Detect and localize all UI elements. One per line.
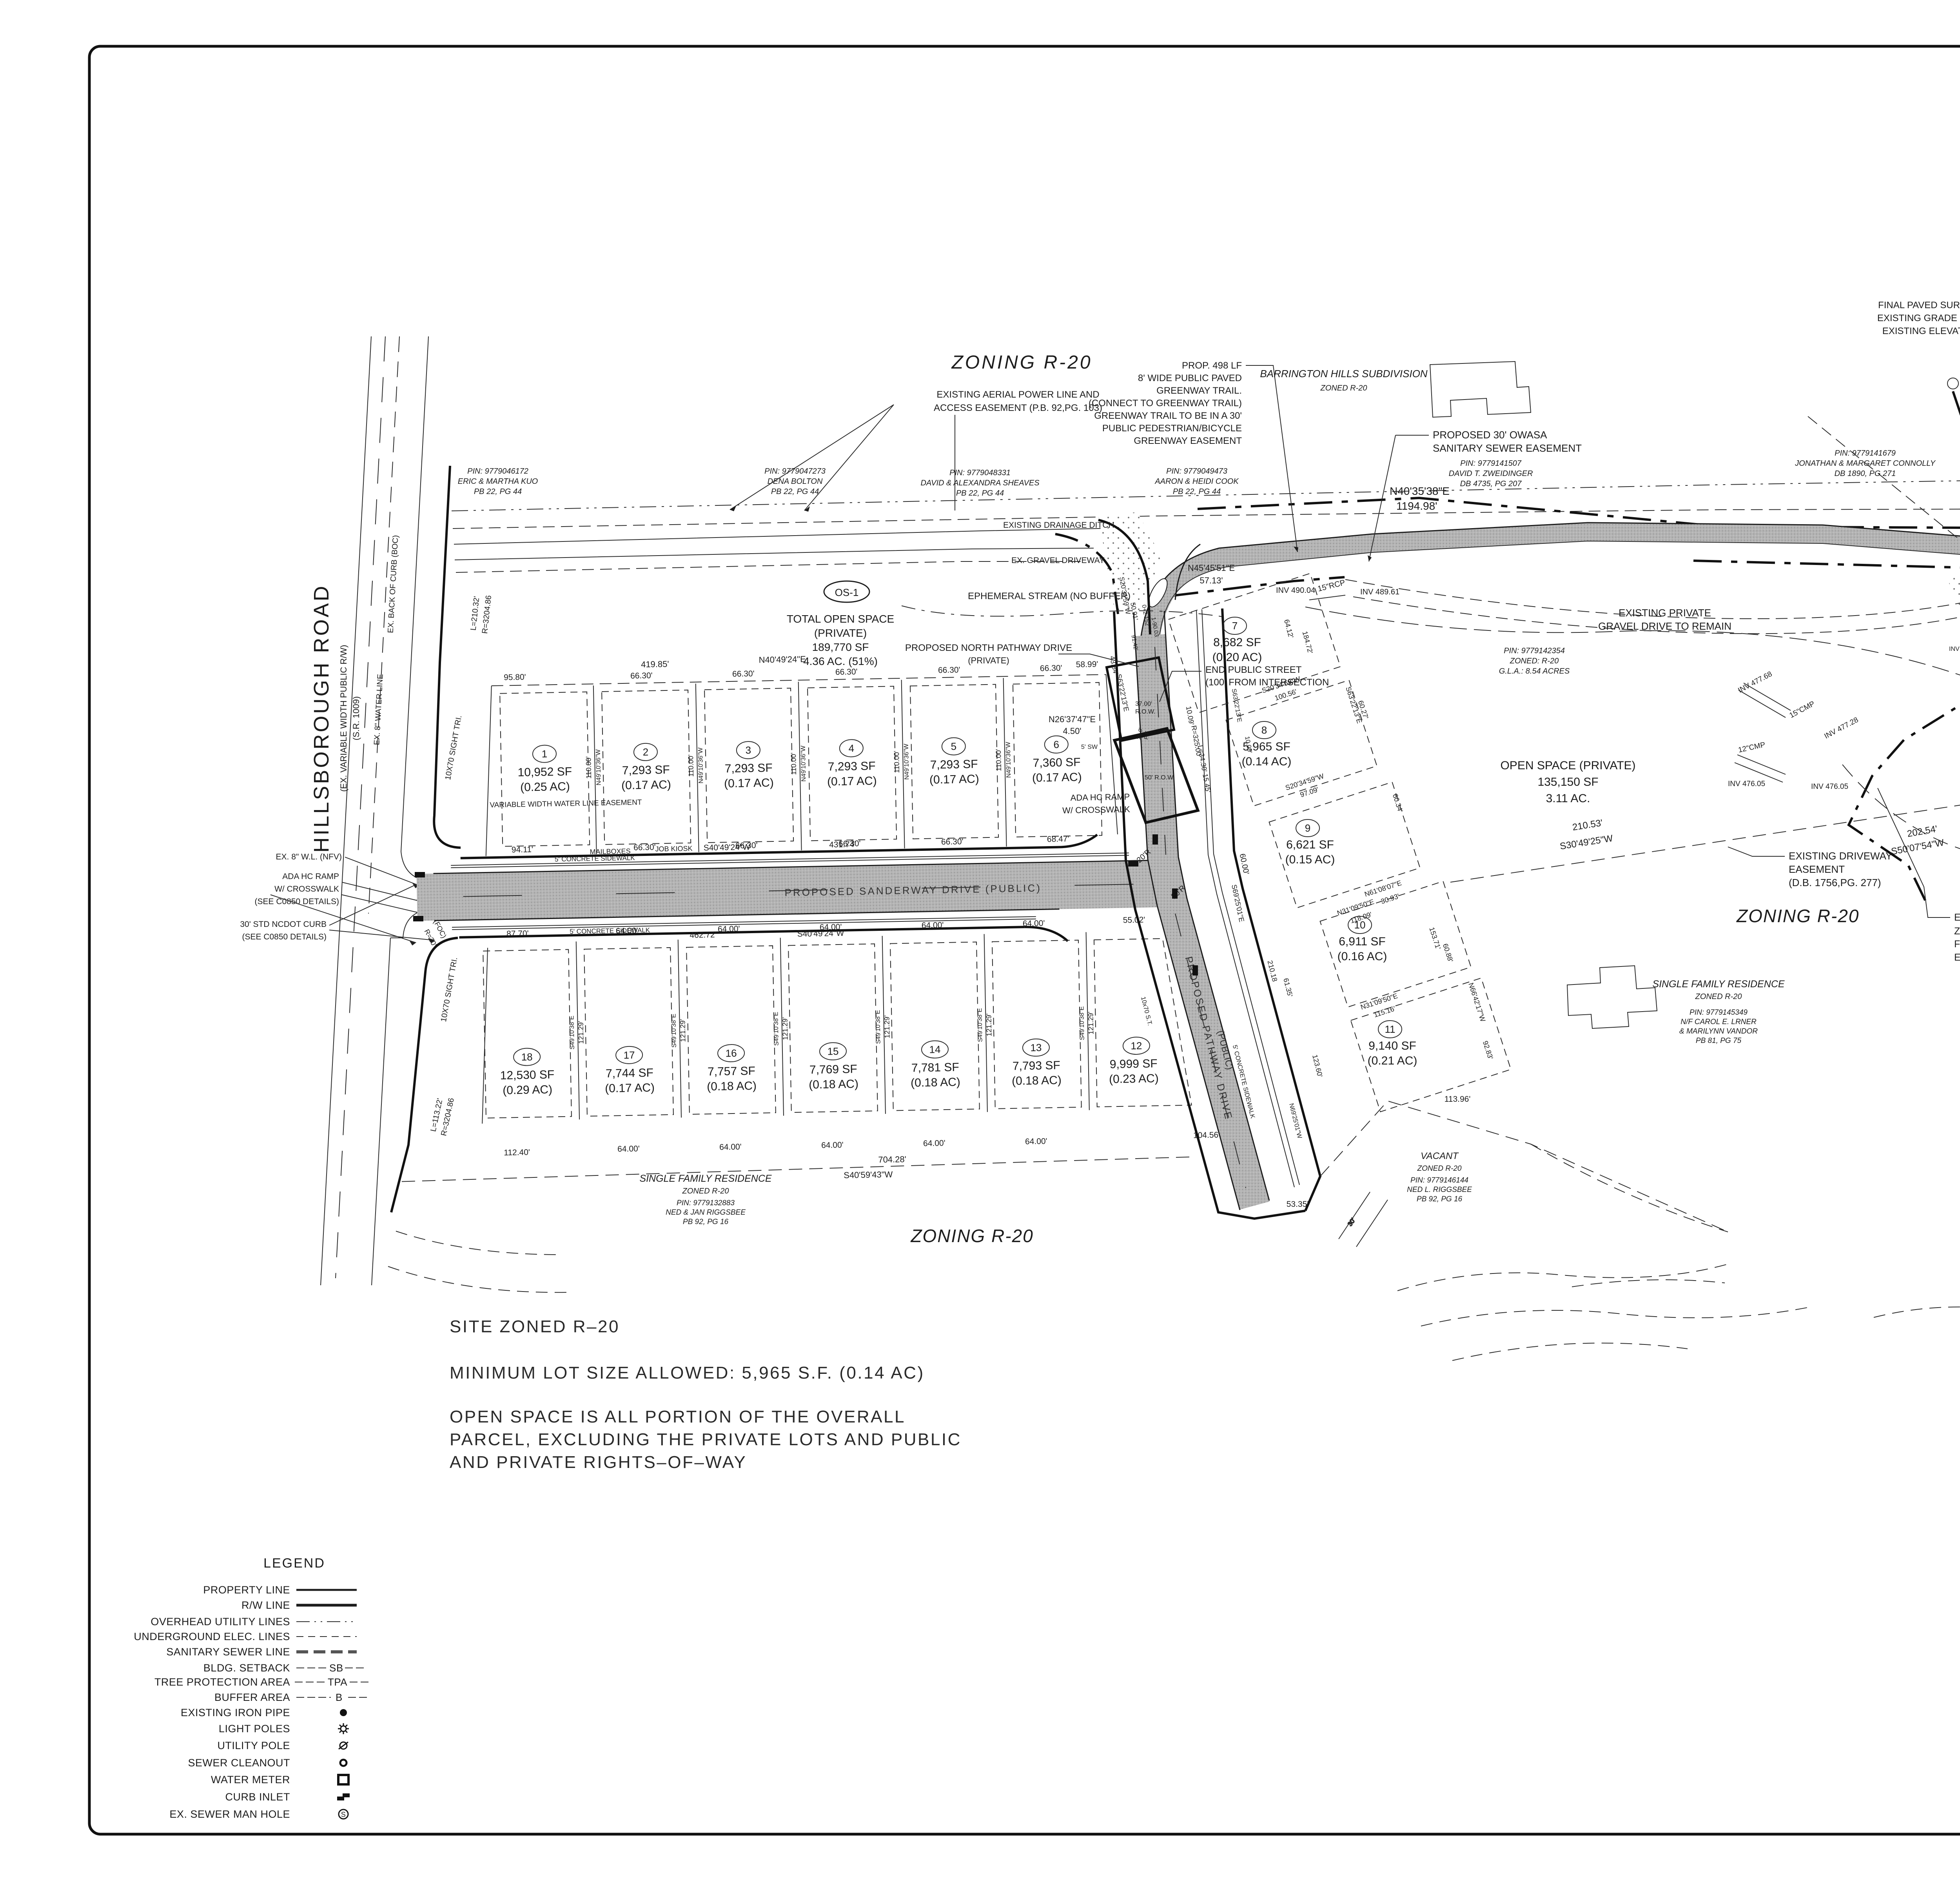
svg-text:8,682 SF: 8,682 SF bbox=[1213, 636, 1261, 649]
svg-text:EXISTING AERIAL POWER LINE AND: EXISTING AERIAL POWER LINE AND bbox=[936, 389, 1099, 400]
svg-text:ZONING R-20: ZONING R-20 bbox=[1736, 906, 1859, 926]
svg-text:64.00': 64.00' bbox=[719, 1143, 742, 1152]
svg-text:BARRINGTON HILLS SUBDIVISION: BARRINGTON HILLS SUBDIVISION bbox=[1260, 368, 1427, 380]
svg-text:INV 489.61: INV 489.61 bbox=[1360, 588, 1399, 596]
svg-text:JONATHAN & MARGARET CONNOLLY: JONATHAN & MARGARET CONNOLLY bbox=[1795, 459, 1936, 468]
svg-text:TPA: TPA bbox=[328, 1676, 347, 1688]
svg-text:95.80': 95.80' bbox=[504, 672, 526, 682]
svg-text:R=325.00: R=325.00 bbox=[1190, 725, 1203, 757]
svg-text:EXISTING 1.0% CHANCE FLOOD LIN: EXISTING 1.0% CHANCE FLOOD LINE bbox=[1954, 912, 1960, 923]
svg-text:(EX. VARIABLE WIDTH PUBLIC R/W: (EX. VARIABLE WIDTH PUBLIC R/W) bbox=[339, 645, 348, 792]
svg-text:PIN: 9779046172: PIN: 9779046172 bbox=[467, 467, 528, 476]
svg-text:110.00': 110.00' bbox=[584, 756, 593, 779]
svg-text:66.30': 66.30' bbox=[938, 665, 960, 675]
svg-text:INV 476.05: INV 476.05 bbox=[1811, 783, 1848, 791]
svg-text:S63'22'13"E: S63'22'13"E bbox=[1230, 688, 1243, 723]
svg-text:ZONING R-20: ZONING R-20 bbox=[951, 352, 1092, 373]
svg-text:S49'10'38"E: S49'10'38"E bbox=[875, 1010, 882, 1044]
svg-text:S30'49'25"W: S30'49'25"W bbox=[1559, 833, 1613, 852]
svg-text:57.13': 57.13' bbox=[1200, 576, 1223, 585]
svg-text:PROP. 498 LF: PROP. 498 LF bbox=[1182, 360, 1242, 371]
svg-text:64.12': 64.12' bbox=[1283, 618, 1295, 639]
svg-text:16: 16 bbox=[725, 1047, 737, 1059]
svg-text:43.84': 43.84' bbox=[1108, 655, 1120, 676]
svg-text:2: 2 bbox=[642, 746, 648, 758]
svg-text:ZONED R-20: ZONED R-20 bbox=[1417, 1164, 1462, 1173]
svg-text:S49'10'38"E: S49'10'38"E bbox=[568, 1015, 576, 1050]
svg-text:64.00': 64.00' bbox=[923, 1139, 946, 1148]
svg-text:OPEN SPACE IS ALL PORTION: OPEN SPACE IS ALL PORTION OF THE OVERALL bbox=[450, 1407, 906, 1426]
svg-text:30': 30' bbox=[1347, 1217, 1357, 1228]
svg-text:S40'49'24"W: S40'49'24"W bbox=[797, 929, 844, 939]
svg-text:BLDG. SETBACK: BLDG. SETBACK bbox=[203, 1662, 290, 1674]
svg-text:EASEMENT: EASEMENT bbox=[1789, 863, 1845, 875]
svg-text:50' R.O.W.: 50' R.O.W. bbox=[1145, 774, 1175, 781]
svg-text:(0.29 AC): (0.29 AC) bbox=[503, 1083, 552, 1097]
svg-text:53.35': 53.35' bbox=[1287, 1200, 1309, 1209]
svg-text:MAILBOXES: MAILBOXES bbox=[590, 847, 630, 856]
svg-text:(PRIVATE): (PRIVATE) bbox=[968, 656, 1009, 665]
svg-text:N26'37'47"E: N26'37'47"E bbox=[1049, 714, 1096, 724]
svg-text:4: 4 bbox=[848, 742, 854, 754]
svg-text:(0.23 AC): (0.23 AC) bbox=[1109, 1072, 1159, 1086]
svg-text:N40'49'24"E: N40'49'24"E bbox=[759, 654, 806, 665]
svg-text:64.00': 64.00' bbox=[922, 921, 944, 930]
svg-text:9: 9 bbox=[1305, 822, 1310, 834]
svg-text:S49'10'38"E: S49'10'38"E bbox=[976, 1008, 984, 1042]
svg-text:PROPOSED 30' OWASA: PROPOSED 30' OWASA bbox=[1433, 429, 1547, 441]
svg-text:PUBLIC PEDESTRIAN/BICYCLE: PUBLIC PEDESTRIAN/BICYCLE bbox=[1102, 423, 1242, 434]
svg-text:5: 5 bbox=[951, 740, 956, 752]
svg-text:121.29': 121.29' bbox=[1087, 1012, 1095, 1035]
svg-text:R=20': R=20' bbox=[423, 928, 438, 948]
svg-text:3: 3 bbox=[745, 744, 751, 756]
svg-text:PIN: 9779141679: PIN: 9779141679 bbox=[1835, 449, 1896, 458]
svg-text:419.85': 419.85' bbox=[641, 659, 669, 669]
svg-text:N49'10'36"W: N49'10'36"W bbox=[903, 743, 911, 780]
svg-text:B: B bbox=[336, 1691, 343, 1703]
svg-text:FINAL PAVED SURFACE TO MATCH: FINAL PAVED SURFACE TO MATCH bbox=[1878, 300, 1960, 311]
svg-text:NED L. RIGGSBEE: NED L. RIGGSBEE bbox=[1407, 1186, 1472, 1194]
svg-text:7,360 SF: 7,360 SF bbox=[1033, 756, 1080, 770]
svg-text:(S.R. 1009): (S.R. 1009) bbox=[351, 696, 361, 741]
svg-text:7,293 SF: 7,293 SF bbox=[930, 758, 978, 771]
svg-text:(100' FROM INTERSECTION: (100' FROM INTERSECTION bbox=[1205, 677, 1329, 688]
svg-text:(0.17 AC): (0.17 AC) bbox=[724, 776, 774, 790]
svg-text:87.70': 87.70' bbox=[506, 929, 529, 938]
svg-text:OS-1: OS-1 bbox=[835, 587, 859, 598]
svg-text:1194.98': 1194.98' bbox=[1396, 500, 1437, 512]
svg-text:S40'59'43"W: S40'59'43"W bbox=[844, 1170, 893, 1180]
svg-text:EPHEMERAL STREAM (NO BUFFER): EPHEMERAL STREAM (NO BUFFER) bbox=[968, 591, 1131, 601]
svg-text:15: 15 bbox=[827, 1045, 838, 1057]
svg-text:10.09': 10.09' bbox=[1185, 705, 1196, 725]
svg-text:OVERHEAD UTILITY LINES: OVERHEAD UTILITY LINES bbox=[151, 1616, 290, 1628]
svg-text:94.11': 94.11' bbox=[512, 845, 533, 854]
svg-text:EXISTING ELEVATION AT STREAM: EXISTING ELEVATION AT STREAM bbox=[1882, 326, 1960, 336]
svg-text:110.00': 110.00' bbox=[789, 752, 798, 775]
svg-text:CURB INLET: CURB INLET bbox=[225, 1791, 290, 1803]
svg-text:PB 22, PG 44: PB 22, PG 44 bbox=[474, 487, 522, 496]
svg-text:8' WIDE PUBLIC PAVED: 8' WIDE PUBLIC PAVED bbox=[1138, 373, 1242, 383]
svg-text:(SEE C0850 DETAILS): (SEE C0850 DETAILS) bbox=[242, 932, 327, 941]
svg-text:OPEN SPACE (PRIVATE): OPEN SPACE (PRIVATE) bbox=[1500, 759, 1635, 772]
svg-text:9,999 SF: 9,999 SF bbox=[1110, 1057, 1158, 1071]
svg-text:DB 4735, PG 207: DB 4735, PG 207 bbox=[1460, 480, 1522, 488]
svg-text:INV 490.04: INV 490.04 bbox=[1276, 586, 1315, 595]
svg-text:HILLSBOROUGH ROAD: HILLSBOROUGH ROAD bbox=[310, 584, 333, 852]
svg-text:10X70 SIGHT TRI.: 10X70 SIGHT TRI. bbox=[439, 957, 459, 1023]
svg-text:7,781 SF: 7,781 SF bbox=[911, 1061, 959, 1074]
svg-text:7,744 SF: 7,744 SF bbox=[606, 1066, 653, 1080]
svg-text:135,150 SF: 135,150 SF bbox=[1537, 776, 1598, 788]
svg-text:(CONNECT TO GREENWAY TRAIL): (CONNECT TO GREENWAY TRAIL) bbox=[1089, 398, 1242, 409]
svg-text:6: 6 bbox=[1053, 739, 1059, 750]
svg-text:MINIMUM LOT SIZE ALLOWED:: MINIMUM LOT SIZE ALLOWED: 5,965 S.F. (0.… bbox=[450, 1363, 925, 1382]
svg-text:PIN: 9779146144: PIN: 9779146144 bbox=[1410, 1176, 1468, 1184]
svg-text:PIN: 9779132883: PIN: 9779132883 bbox=[677, 1199, 735, 1207]
svg-text:66.30': 66.30' bbox=[630, 671, 653, 681]
svg-text:(0.16 AC): (0.16 AC) bbox=[1338, 950, 1387, 963]
svg-text:W/ CROSSWALK: W/ CROSSWALK bbox=[1062, 804, 1131, 815]
svg-text:N66'42'17"W: N66'42'17"W bbox=[1467, 982, 1487, 1023]
svg-text:DAVID T. ZWEIDINGER: DAVID T. ZWEIDINGER bbox=[1449, 469, 1533, 478]
svg-text:PARCEL, EXCLUDING THE PRIVA: PARCEL, EXCLUDING THE PRIVATE LOTS AND P… bbox=[450, 1430, 962, 1449]
svg-text:462.72': 462.72' bbox=[690, 930, 717, 940]
svg-text:ZONED R-20: ZONED R-20 bbox=[1320, 384, 1367, 392]
svg-text:FIRM 3710977900K: FIRM 3710977900K bbox=[1954, 939, 1960, 950]
svg-text:EX. 8" W.L. (NFV): EX. 8" W.L. (NFV) bbox=[276, 852, 342, 861]
svg-text:61.35': 61.35' bbox=[1282, 977, 1294, 998]
svg-text:431.74': 431.74' bbox=[829, 840, 856, 849]
svg-text:PB 22, PG 44: PB 22, PG 44 bbox=[1173, 487, 1221, 496]
svg-text:AND PRIVATE RIGHTS–OF–WAY: AND PRIVATE RIGHTS–OF–WAY bbox=[450, 1453, 747, 1472]
svg-text:N/F CAROL E. LRNER: N/F CAROL E. LRNER bbox=[1681, 1018, 1757, 1026]
svg-text:15"RCP: 15"RCP bbox=[1317, 578, 1346, 594]
svg-text:ZONED R-20: ZONED R-20 bbox=[1695, 992, 1742, 1001]
svg-text:PB 22, PG 44: PB 22, PG 44 bbox=[771, 487, 819, 496]
svg-text:EXISTING IRON PIPE: EXISTING IRON PIPE bbox=[181, 1707, 290, 1719]
svg-text:S40'49'24"W: S40'49'24"W bbox=[704, 843, 751, 852]
svg-text:17: 17 bbox=[623, 1049, 635, 1061]
svg-text:7,769 SF: 7,769 SF bbox=[809, 1063, 857, 1076]
svg-text:12"CMP: 12"CMP bbox=[1737, 741, 1766, 754]
svg-text:92.83': 92.83' bbox=[1481, 1040, 1495, 1060]
svg-text:SB: SB bbox=[329, 1662, 343, 1674]
svg-text:LIGHT POLES: LIGHT POLES bbox=[219, 1723, 290, 1735]
svg-text:ACCESS EASEMENT (P.B. 92,PG. 1: ACCESS EASEMENT (P.B. 92,PG. 103) bbox=[934, 403, 1102, 413]
svg-text:121.29': 121.29' bbox=[781, 1017, 789, 1040]
svg-text:TOTAL OPEN SPACE: TOTAL OPEN SPACE bbox=[787, 613, 894, 625]
svg-text:(0.18 AC): (0.18 AC) bbox=[809, 1077, 858, 1091]
svg-text:GREENWAY TRAIL TO BE IN A 30': GREENWAY TRAIL TO BE IN A 30' bbox=[1094, 411, 1242, 421]
svg-text:66.30': 66.30' bbox=[633, 843, 656, 852]
svg-text:N49'10'36"W: N49'10'36"W bbox=[1005, 741, 1013, 778]
svg-text:NED & JAN RIGGSBEE: NED & JAN RIGGSBEE bbox=[666, 1208, 746, 1217]
svg-text:SANITARY SEWER EASEMENT: SANITARY SEWER EASEMENT bbox=[1433, 442, 1582, 454]
svg-text:N49'10'36"W: N49'10'36"W bbox=[697, 747, 705, 783]
svg-text:14: 14 bbox=[929, 1043, 940, 1055]
svg-text:(0.17 AC): (0.17 AC) bbox=[621, 778, 671, 792]
svg-text:189,770 SF: 189,770 SF bbox=[812, 641, 869, 653]
svg-text:12,530 SF: 12,530 SF bbox=[500, 1068, 554, 1082]
svg-text:66.30': 66.30' bbox=[941, 837, 964, 847]
svg-text:18: 18 bbox=[521, 1051, 532, 1063]
svg-text:UNDERGROUND ELEC. LINES: UNDERGROUND ELEC. LINES bbox=[134, 1631, 290, 1642]
svg-text:PIN: 9779048331: PIN: 9779048331 bbox=[949, 469, 1011, 477]
svg-text:210.53': 210.53' bbox=[1572, 817, 1603, 833]
svg-text:121.29': 121.29' bbox=[985, 1014, 993, 1037]
svg-text:EXISTING DRIVEWAY: EXISTING DRIVEWAY bbox=[1789, 850, 1892, 862]
svg-text:5' SW: 5' SW bbox=[1081, 744, 1098, 750]
svg-text:7,757 SF: 7,757 SF bbox=[708, 1065, 755, 1078]
svg-text:ZONED: R-20: ZONED: R-20 bbox=[1510, 657, 1559, 665]
svg-text:PIN: 9779141507: PIN: 9779141507 bbox=[1460, 459, 1522, 468]
svg-text:ERIC & MARTHA KUO: ERIC & MARTHA KUO bbox=[458, 477, 538, 486]
svg-text:ADA HC RAMP: ADA HC RAMP bbox=[1070, 792, 1130, 803]
svg-text:(0.20 AC): (0.20 AC) bbox=[1212, 651, 1262, 664]
svg-text:66.30': 66.30' bbox=[835, 667, 858, 677]
svg-text:13: 13 bbox=[1030, 1042, 1042, 1054]
svg-text:64.00': 64.00' bbox=[718, 925, 740, 934]
svg-text:15"CMP: 15"CMP bbox=[1788, 699, 1817, 719]
svg-text:(0.21 AC): (0.21 AC) bbox=[1368, 1054, 1417, 1067]
svg-text:INV 477.68: INV 477.68 bbox=[1737, 670, 1774, 695]
svg-text:PROPERTY LINE: PROPERTY LINE bbox=[203, 1584, 290, 1596]
svg-text:PB 92, PG 16: PB 92, PG 16 bbox=[1417, 1195, 1463, 1203]
svg-text:704.28': 704.28' bbox=[878, 1154, 906, 1164]
svg-text:115.16': 115.16' bbox=[1373, 1005, 1397, 1019]
svg-text:60.34': 60.34' bbox=[1391, 793, 1405, 813]
svg-text:ADA HC RAMP: ADA HC RAMP bbox=[282, 872, 339, 881]
svg-text:64.00': 64.00' bbox=[1025, 1137, 1047, 1146]
svg-text:ZONING R-20: ZONING R-20 bbox=[910, 1226, 1033, 1246]
svg-text:S49'10'38"E: S49'10'38"E bbox=[670, 1014, 678, 1048]
svg-text:4.50': 4.50' bbox=[1063, 726, 1081, 736]
svg-text:S20'34'59"W: S20'34'59"W bbox=[1284, 772, 1325, 792]
svg-text:(0.15 AC): (0.15 AC) bbox=[1285, 853, 1335, 866]
svg-text:GRAVEL DRIVE TO REMAIN: GRAVEL DRIVE TO REMAIN bbox=[1598, 620, 1731, 632]
svg-text:184.72': 184.72' bbox=[1301, 630, 1314, 655]
svg-text:EXISTING PRIVATE: EXISTING PRIVATE bbox=[1619, 607, 1711, 619]
svg-text:W/ CROSSWALK: W/ CROSSWALK bbox=[274, 885, 339, 894]
svg-text:S50'07'54"W: S50'07'54"W bbox=[1890, 837, 1945, 857]
svg-text:110.00': 110.00' bbox=[995, 749, 1003, 772]
svg-text:(0.18 AC): (0.18 AC) bbox=[707, 1079, 757, 1093]
svg-text:SITE ZONED R–20: SITE ZONED R–20 bbox=[450, 1317, 620, 1336]
svg-text:7,293 SF: 7,293 SF bbox=[828, 759, 876, 773]
svg-text:153.71': 153.71' bbox=[1428, 926, 1442, 950]
svg-text:8: 8 bbox=[1261, 724, 1267, 736]
svg-text:97.09': 97.09' bbox=[1299, 785, 1319, 799]
svg-text:3.11 AC.: 3.11 AC. bbox=[1546, 792, 1590, 805]
svg-text:VACANT: VACANT bbox=[1421, 1151, 1459, 1161]
svg-text:DENA BOLTON: DENA BOLTON bbox=[768, 477, 823, 486]
svg-text:PIN: 9779047273: PIN: 9779047273 bbox=[764, 467, 826, 476]
svg-text:END PUBLIC STREET: END PUBLIC STREET bbox=[1205, 665, 1302, 675]
svg-text:N40'35'38"E: N40'35'38"E bbox=[1390, 485, 1450, 497]
svg-text:(0.14 AC): (0.14 AC) bbox=[1242, 755, 1292, 768]
svg-text:& MARILYNN VANDOR: & MARILYNN VANDOR bbox=[1679, 1027, 1758, 1035]
svg-text:SANITARY SEWER LINE: SANITARY SEWER LINE bbox=[166, 1646, 290, 1658]
svg-text:30' STD NCDOT CURB: 30' STD NCDOT CURB bbox=[240, 920, 327, 929]
svg-text:ZONED R-20: ZONED R-20 bbox=[682, 1187, 729, 1195]
svg-text:11: 11 bbox=[1385, 1023, 1396, 1035]
svg-text:S49'10'38"E: S49'10'38"E bbox=[773, 1012, 780, 1046]
svg-text:5,965 SF: 5,965 SF bbox=[1243, 740, 1290, 753]
svg-text:(0.17 AC): (0.17 AC) bbox=[605, 1081, 655, 1095]
svg-text:DAVID & ALEXANDRA SHEAVES: DAVID & ALEXANDRA SHEAVES bbox=[920, 479, 1040, 487]
svg-text:UTILITY POLE: UTILITY POLE bbox=[217, 1740, 290, 1751]
svg-text:112.40': 112.40' bbox=[504, 1148, 530, 1157]
svg-text:10X70 SIGHT TRI.: 10X70 SIGHT TRI. bbox=[444, 715, 464, 781]
svg-text:PIN: 9779142354: PIN: 9779142354 bbox=[1504, 647, 1565, 655]
svg-text:123.60': 123.60' bbox=[1311, 1054, 1324, 1078]
svg-text:55.02': 55.02' bbox=[1123, 916, 1145, 925]
svg-text:113.96': 113.96' bbox=[1445, 1095, 1471, 1104]
svg-text:(0.25 AC): (0.25 AC) bbox=[520, 780, 570, 794]
svg-text:INV 477.28: INV 477.28 bbox=[1823, 716, 1860, 741]
svg-text:121.29': 121.29' bbox=[883, 1015, 891, 1038]
svg-text:DB 1890, PG 271: DB 1890, PG 271 bbox=[1835, 469, 1896, 478]
svg-text:EXISTING GRADE (NO CHANGE TO: EXISTING GRADE (NO CHANGE TO bbox=[1877, 313, 1960, 323]
svg-text:LEGEND: LEGEND bbox=[263, 1556, 325, 1571]
svg-text:12: 12 bbox=[1131, 1040, 1142, 1052]
svg-text:(0.18 AC): (0.18 AC) bbox=[911, 1075, 960, 1089]
svg-text:5' CONCRETE SIDEWALK: 5' CONCRETE SIDEWALK bbox=[570, 926, 650, 936]
svg-text:BUFFER AREA: BUFFER AREA bbox=[214, 1691, 290, 1703]
svg-text:(SEE C0850 DETAILS): (SEE C0850 DETAILS) bbox=[254, 897, 339, 906]
svg-text:PB 92, PG 16: PB 92, PG 16 bbox=[683, 1218, 729, 1226]
svg-text:PIN: 9779049473: PIN: 9779049473 bbox=[1166, 467, 1227, 476]
svg-text:INV 477.58: INV 477.58 bbox=[1949, 646, 1960, 652]
svg-text:EXISTING DRAINAGE DITCH: EXISTING DRAINAGE DITCH bbox=[1003, 521, 1114, 530]
svg-text:WATER METER: WATER METER bbox=[211, 1774, 290, 1786]
svg-text:PB 81, PG 75: PB 81, PG 75 bbox=[1696, 1037, 1742, 1045]
svg-text:37.00': 37.00' bbox=[1135, 701, 1152, 707]
svg-text:4.36 AC. (51%): 4.36 AC. (51%) bbox=[803, 655, 878, 667]
svg-text:30.93': 30.93' bbox=[1380, 892, 1400, 905]
svg-text:L=210.32': L=210.32' bbox=[469, 596, 481, 631]
svg-text:110.00': 110.00' bbox=[893, 750, 901, 773]
svg-text:EX. GRAVEL DRIVEWAY: EX. GRAVEL DRIVEWAY bbox=[1011, 556, 1105, 565]
svg-text:S: S bbox=[341, 1811, 346, 1818]
svg-text:GREENWAY EASEMENT: GREENWAY EASEMENT bbox=[1134, 436, 1242, 446]
svg-text:10x70 S.T.: 10x70 S.T. bbox=[1140, 996, 1153, 1026]
svg-text:66.30': 66.30' bbox=[1040, 663, 1062, 673]
svg-text:9,140 SF: 9,140 SF bbox=[1368, 1039, 1416, 1052]
svg-text:PROPOSED NORTH PATHWAY DRIVE: PROPOSED NORTH PATHWAY DRIVE bbox=[905, 643, 1072, 653]
svg-text:7,293 SF: 7,293 SF bbox=[622, 763, 670, 777]
svg-text:TREE PROTECTION AREA: TREE PROTECTION AREA bbox=[154, 1676, 290, 1688]
svg-text:7,293 SF: 7,293 SF bbox=[725, 761, 773, 775]
svg-text:ZONE AE; ELEV. 475.2: ZONE AE; ELEV. 475.2 bbox=[1954, 926, 1960, 937]
svg-text:(0.17 AC): (0.17 AC) bbox=[827, 774, 877, 788]
svg-text:R=3204.86: R=3204.86 bbox=[481, 595, 493, 634]
svg-text:S49'10'38"E: S49'10'38"E bbox=[1078, 1006, 1086, 1040]
svg-text:EX. 8" WATER LINE: EX. 8" WATER LINE bbox=[372, 674, 385, 745]
svg-text:(0.18 AC): (0.18 AC) bbox=[1012, 1074, 1062, 1088]
svg-text:SINGLE FAMILY RESIDENCE: SINGLE FAMILY RESIDENCE bbox=[639, 1173, 771, 1184]
svg-text:64.00': 64.00' bbox=[617, 1144, 640, 1154]
svg-text:60.88': 60.88' bbox=[1441, 943, 1455, 963]
svg-text:G.L.A.: 8.54 ACRES: G.L.A.: 8.54 ACRES bbox=[1499, 667, 1570, 676]
svg-text:64.00': 64.00' bbox=[821, 1141, 844, 1150]
svg-text:(PRIVATE): (PRIVATE) bbox=[814, 627, 867, 639]
svg-text:6,911 SF: 6,911 SF bbox=[1339, 935, 1386, 948]
svg-text:58.99': 58.99' bbox=[1076, 660, 1098, 669]
svg-text:EX. SEWER MAN HOLE: EX. SEWER MAN HOLE bbox=[169, 1808, 290, 1820]
svg-text:7: 7 bbox=[1232, 620, 1238, 632]
svg-text:(0.17 AC): (0.17 AC) bbox=[1032, 771, 1082, 785]
svg-text:EFFECTIVE DATE 11/17/2017: EFFECTIVE DATE 11/17/2017 bbox=[1954, 952, 1960, 963]
svg-text:66.30': 66.30' bbox=[732, 669, 755, 679]
svg-text:64.00': 64.00' bbox=[616, 926, 638, 936]
svg-text:R/W LINE: R/W LINE bbox=[241, 1599, 290, 1611]
svg-text:64.00': 64.00' bbox=[1023, 919, 1045, 928]
svg-text:JOB KIOSK: JOB KIOSK bbox=[655, 845, 692, 853]
svg-text:PIN: 9779145349: PIN: 9779145349 bbox=[1690, 1008, 1748, 1017]
svg-text:121.29': 121.29' bbox=[577, 1021, 585, 1044]
svg-text:R.O.W.: R.O.W. bbox=[1135, 708, 1156, 715]
svg-text:INV 476.05: INV 476.05 bbox=[1728, 780, 1765, 788]
svg-text:PB 22, PG 44: PB 22, PG 44 bbox=[956, 489, 1004, 498]
svg-text:VARIABLE WIDTH WATER LINE EASE: VARIABLE WIDTH WATER LINE EASEMENT bbox=[490, 798, 642, 809]
svg-text:68.47': 68.47' bbox=[1047, 834, 1069, 844]
svg-text:N49'10'36"W: N49'10'36"W bbox=[595, 749, 603, 785]
svg-text:110.00': 110.00' bbox=[687, 754, 695, 777]
svg-text:SINGLE FAMILY RESIDENCE: SINGLE FAMILY RESIDENCE bbox=[1652, 979, 1784, 990]
svg-text:AARON & HEIDI COOK: AARON & HEIDI COOK bbox=[1154, 477, 1239, 486]
svg-text:202.54': 202.54' bbox=[1906, 824, 1938, 839]
svg-text:SEWER CLEANOUT: SEWER CLEANOUT bbox=[188, 1757, 290, 1769]
svg-text:1: 1 bbox=[541, 748, 547, 760]
svg-text:10,952 SF: 10,952 SF bbox=[517, 765, 572, 779]
svg-text:121.29': 121.29' bbox=[679, 1019, 687, 1042]
svg-text:7,793 SF: 7,793 SF bbox=[1013, 1059, 1060, 1073]
svg-text:GREENWAY TRAIL.: GREENWAY TRAIL. bbox=[1156, 385, 1242, 396]
svg-text:6,621 SF: 6,621 SF bbox=[1286, 838, 1334, 851]
svg-text:(0.17 AC): (0.17 AC) bbox=[929, 772, 979, 786]
svg-text:(D.B. 1756,PG. 277): (D.B. 1756,PG. 277) bbox=[1789, 877, 1881, 888]
svg-text:N49'10'36"W: N49'10'36"W bbox=[800, 745, 808, 782]
svg-text:N45'45'51"E: N45'45'51"E bbox=[1188, 563, 1235, 573]
